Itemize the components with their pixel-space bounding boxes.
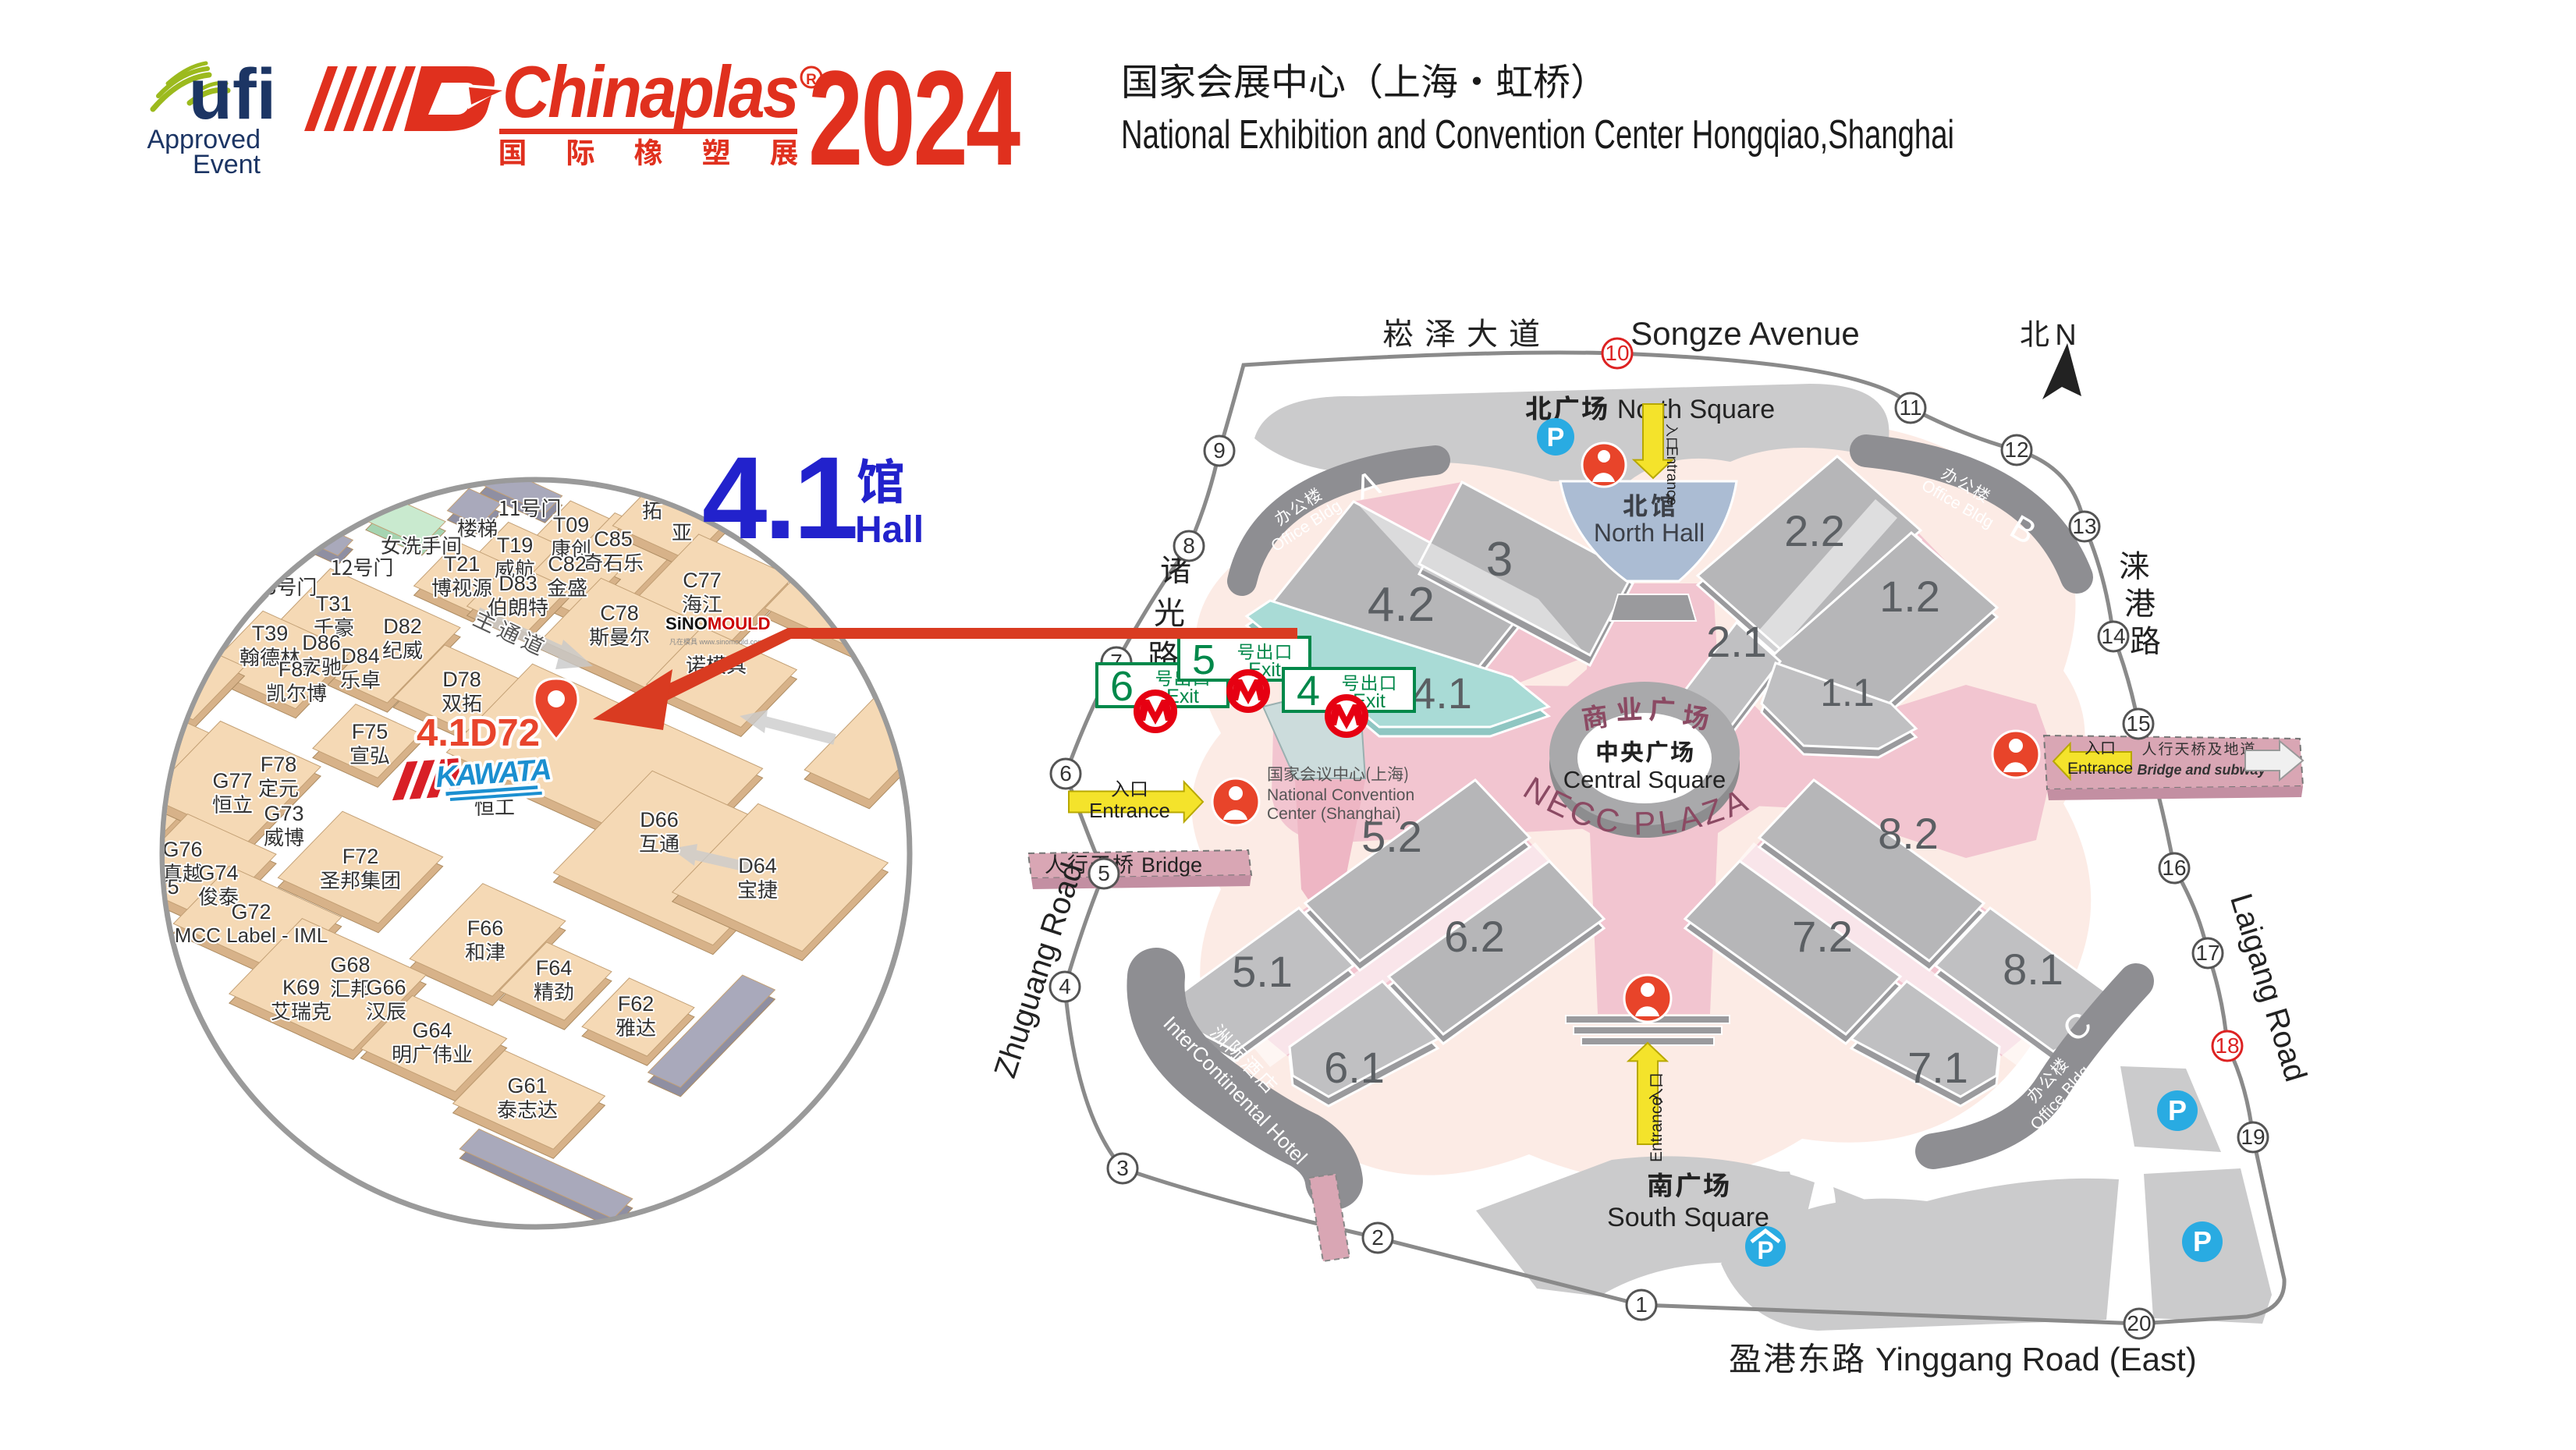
svg-text:Entrance: Entrance — [1089, 799, 1170, 822]
svg-text:North Square: North Square — [1617, 395, 1775, 424]
svg-text:F62: F62 — [618, 992, 655, 1016]
svg-text:P: P — [1547, 423, 1565, 452]
svg-text:D66: D66 — [640, 808, 679, 831]
svg-text:Songze Avenue: Songze Avenue — [1630, 315, 1860, 352]
svg-text:4.1D72: 4.1D72 — [417, 712, 540, 754]
svg-text:D64: D64 — [738, 854, 777, 877]
svg-text:1.2: 1.2 — [1879, 572, 1940, 621]
svg-text:7.1: 7.1 — [1907, 1043, 1968, 1092]
svg-text:SiNOMOULD: SiNOMOULD — [665, 614, 770, 633]
svg-text:G68: G68 — [330, 953, 370, 977]
svg-text:MCC Label - IML: MCC Label - IML — [175, 924, 328, 947]
svg-text:T21: T21 — [444, 552, 481, 576]
svg-text:C82: C82 — [548, 552, 587, 576]
svg-text:6: 6 — [1110, 663, 1134, 710]
svg-text:3: 3 — [1486, 533, 1513, 587]
svg-text:7.2: 7.2 — [1792, 912, 1853, 961]
svg-text:G64: G64 — [412, 1019, 452, 1042]
svg-text:G77: G77 — [212, 769, 252, 792]
svg-text:1.1: 1.1 — [1820, 671, 1875, 714]
svg-text:4: 4 — [1297, 668, 1320, 714]
svg-text:10: 10 — [1605, 341, 1629, 365]
svg-text:11: 11 — [1899, 395, 1921, 420]
svg-text:D78: D78 — [442, 668, 481, 691]
svg-text:16: 16 — [2162, 856, 2186, 880]
svg-text:Entrance: Entrance — [1648, 1097, 1666, 1162]
svg-text:P: P — [2193, 1225, 2212, 1257]
svg-text:C85: C85 — [594, 527, 633, 551]
svg-text:D83: D83 — [499, 572, 538, 595]
svg-text:T39: T39 — [252, 622, 289, 645]
svg-text:Bridge: Bridge — [1141, 853, 1202, 877]
svg-text:Event: Event — [193, 150, 261, 179]
svg-text:T19: T19 — [497, 534, 534, 557]
svg-text:20: 20 — [2127, 1311, 2151, 1335]
svg-text:Yinggang Road (East): Yinggang Road (East) — [1875, 1341, 2197, 1377]
svg-text:G61: G61 — [507, 1074, 547, 1097]
svg-text:C78: C78 — [600, 601, 639, 625]
svg-text:National Convention: National Convention — [1267, 786, 1414, 804]
svg-text:2024: 2024 — [808, 44, 1020, 194]
svg-text:5.1: 5.1 — [1232, 947, 1293, 996]
svg-text:4: 4 — [1059, 974, 1071, 998]
svg-text:6.2: 6.2 — [1444, 912, 1505, 961]
svg-text:G73: G73 — [264, 802, 303, 825]
svg-text:2: 2 — [1371, 1225, 1384, 1250]
svg-text:4.1: 4.1 — [1411, 668, 1472, 718]
svg-text:North Hall: North Hall — [1594, 519, 1705, 547]
svg-text:G72: G72 — [231, 900, 271, 924]
svg-text:8: 8 — [1183, 534, 1195, 558]
svg-text:4.2: 4.2 — [1368, 578, 1435, 632]
svg-text:Central Square: Central Square — [1563, 766, 1726, 793]
svg-text:F66: F66 — [467, 916, 504, 940]
svg-text:14: 14 — [2101, 624, 2125, 648]
svg-text:6: 6 — [1059, 761, 1072, 785]
svg-text:凡在模具 www.sinomould.com: 凡在模具 www.sinomould.com — [669, 637, 764, 646]
svg-text:C77: C77 — [683, 569, 722, 592]
svg-text:9: 9 — [1213, 438, 1226, 463]
svg-text:T31: T31 — [316, 592, 353, 615]
svg-text:F72: F72 — [342, 845, 379, 868]
svg-text:5: 5 — [1192, 636, 1215, 683]
svg-text:18: 18 — [2215, 1033, 2239, 1058]
svg-text:2.2: 2.2 — [1784, 506, 1845, 555]
svg-text:D84: D84 — [341, 644, 380, 668]
svg-text:F75: F75 — [352, 720, 389, 743]
svg-text:T09: T09 — [553, 513, 590, 537]
svg-text:ufi: ufi — [189, 55, 276, 134]
svg-text:1: 1 — [1635, 1292, 1648, 1317]
svg-text:5: 5 — [1098, 861, 1110, 885]
svg-text:South Square: South Square — [1607, 1203, 1769, 1232]
svg-text:K69: K69 — [282, 976, 320, 999]
svg-text:5: 5 — [167, 875, 179, 899]
svg-text:3: 3 — [1116, 1156, 1129, 1180]
svg-text:Entrance: Entrance — [2067, 760, 2133, 778]
svg-text:G66: G66 — [366, 976, 406, 999]
svg-text:P: P — [2168, 1094, 2187, 1126]
svg-text:2.1: 2.1 — [1706, 617, 1767, 666]
svg-text:F78: F78 — [261, 753, 297, 776]
svg-text:8.1: 8.1 — [2003, 945, 2063, 994]
svg-text:19: 19 — [2241, 1125, 2265, 1149]
svg-text:17: 17 — [2195, 941, 2219, 965]
svg-text:Chinaplas: Chinaplas — [502, 51, 798, 133]
svg-text:Entrance: Entrance — [1663, 446, 1680, 505]
svg-text:6.1: 6.1 — [1324, 1043, 1385, 1092]
svg-text:D82: D82 — [383, 615, 422, 638]
svg-text:15: 15 — [2126, 711, 2150, 736]
svg-text:Center (Shanghai): Center (Shanghai) — [1267, 805, 1401, 823]
svg-text:P: P — [1757, 1236, 1773, 1264]
svg-text:D86: D86 — [302, 631, 341, 654]
svg-text:12: 12 — [2004, 438, 2028, 462]
svg-text:Hall: Hall — [855, 509, 924, 551]
svg-text:F64: F64 — [536, 956, 573, 980]
svg-text:G74: G74 — [198, 861, 238, 885]
svg-text:4.1: 4.1 — [702, 432, 856, 563]
svg-text:G76: G76 — [162, 838, 202, 861]
svg-text:8.2: 8.2 — [1878, 809, 1939, 858]
svg-text:F87: F87 — [279, 658, 315, 681]
svg-text:13: 13 — [2072, 514, 2096, 538]
svg-text:National Exhibition and Conven: National Exhibition and Convention Cente… — [1121, 112, 1954, 158]
